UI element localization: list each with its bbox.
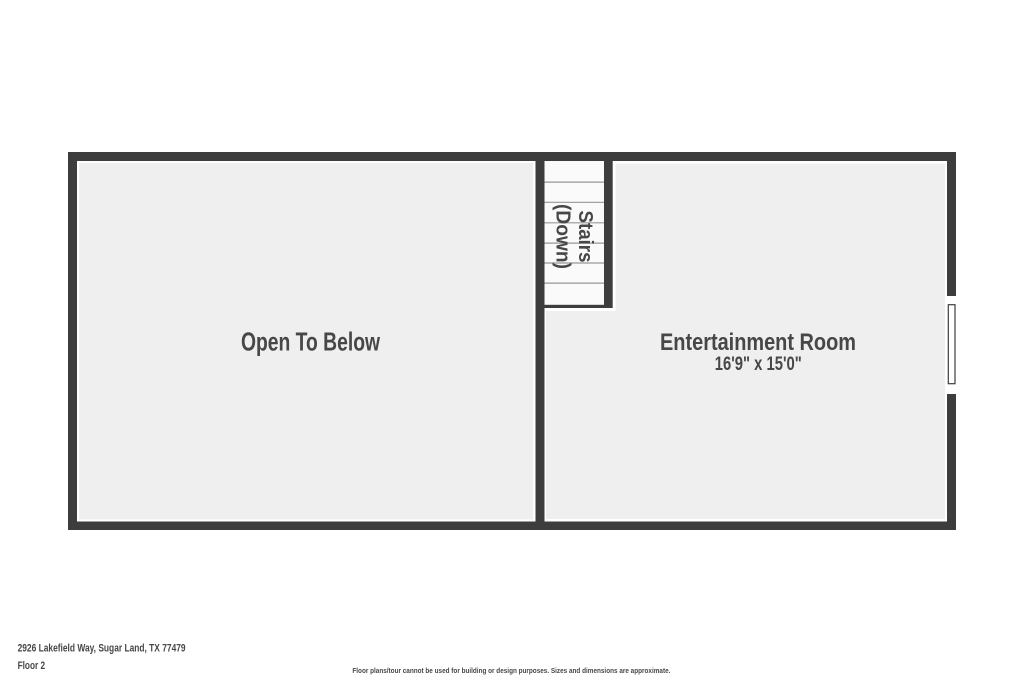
svg-text:16'9" x 15'0": 16'9" x 15'0" [715, 354, 802, 375]
svg-text:2926 Lakefield Way, Sugar Land: 2926 Lakefield Way, Sugar Land, TX 77479 [18, 643, 186, 655]
svg-text:Floor 2: Floor 2 [18, 660, 45, 672]
svg-text:(Down): (Down) [552, 204, 574, 269]
svg-text:Entertainment Room: Entertainment Room [660, 329, 856, 356]
svg-text:Floor plans/tour cannot be use: Floor plans/tour cannot be used for buil… [352, 666, 670, 675]
svg-text:Stairs: Stairs [574, 211, 596, 263]
svg-text:Open To Below: Open To Below [241, 327, 381, 357]
